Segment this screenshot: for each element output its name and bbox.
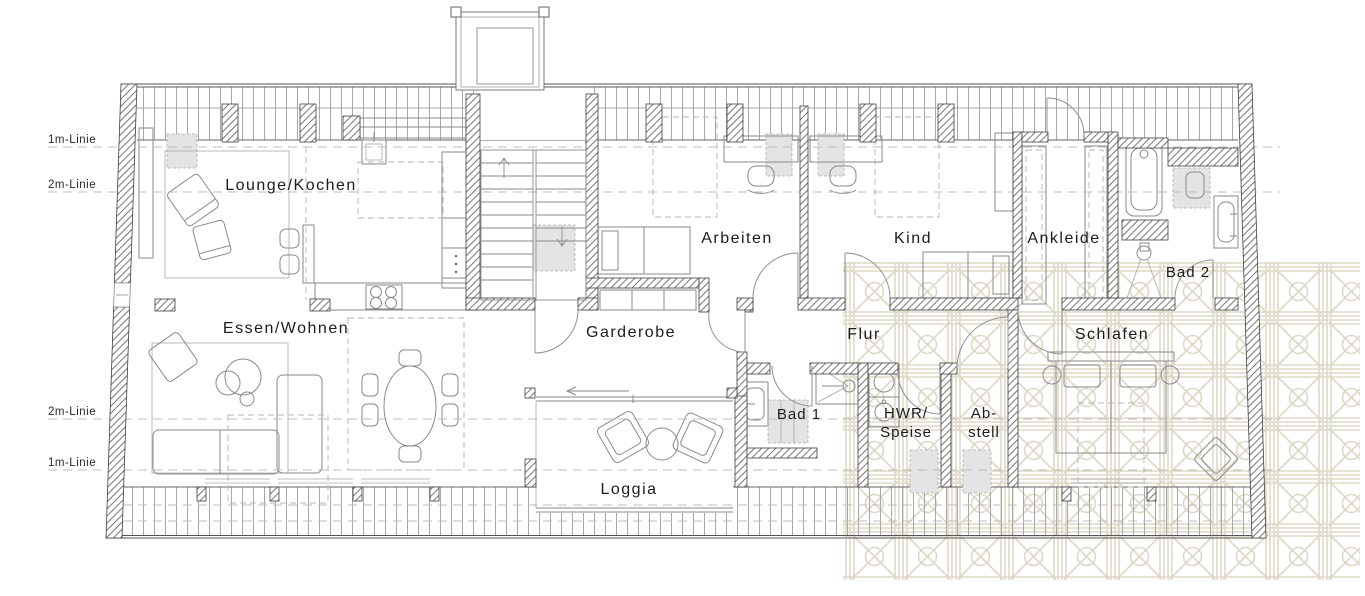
room-label-abstell-line1: Ab-	[971, 405, 997, 422]
room-label-bad2: Bad 2	[1166, 264, 1210, 281]
floor-plan: 1m-Linie 2m-Linie 2m-Linie 1m-Linie Loun…	[0, 0, 1365, 596]
room-label-ankleide: Ankleide	[1027, 230, 1100, 247]
ref-label-top-2m: 2m-Linie	[48, 179, 96, 191]
room-label-bad1: Bad 1	[777, 406, 821, 423]
stair-dormer	[451, 7, 549, 90]
room-label-schlafen: Schlafen	[1075, 326, 1149, 343]
room-label-abstell-line2: stell	[968, 424, 1000, 441]
room-label-flur: Flur	[847, 326, 881, 343]
room-label-loggia: Loggia	[600, 481, 657, 498]
room-label-garderobe: Garderobe	[586, 324, 676, 341]
ref-label-bottom-1m: 1m-Linie	[48, 457, 96, 469]
room-label-hwr-line1: HWR/	[884, 405, 928, 422]
room-label-arbeiten: Arbeiten	[701, 230, 773, 247]
room-label-kind: Kind	[894, 230, 932, 247]
ref-label-top-1m: 1m-Linie	[48, 134, 96, 146]
room-label-essen-wohnen: Essen/Wohnen	[223, 320, 349, 337]
room-label-lounge-kochen: Lounge/Kochen	[225, 177, 357, 194]
ref-label-bottom-2m: 2m-Linie	[48, 406, 96, 418]
floor-plan-page: 1m-Linie 2m-Linie 2m-Linie 1m-Linie Loun…	[0, 0, 1365, 596]
room-label-hwr-line2: Speise	[880, 424, 932, 441]
